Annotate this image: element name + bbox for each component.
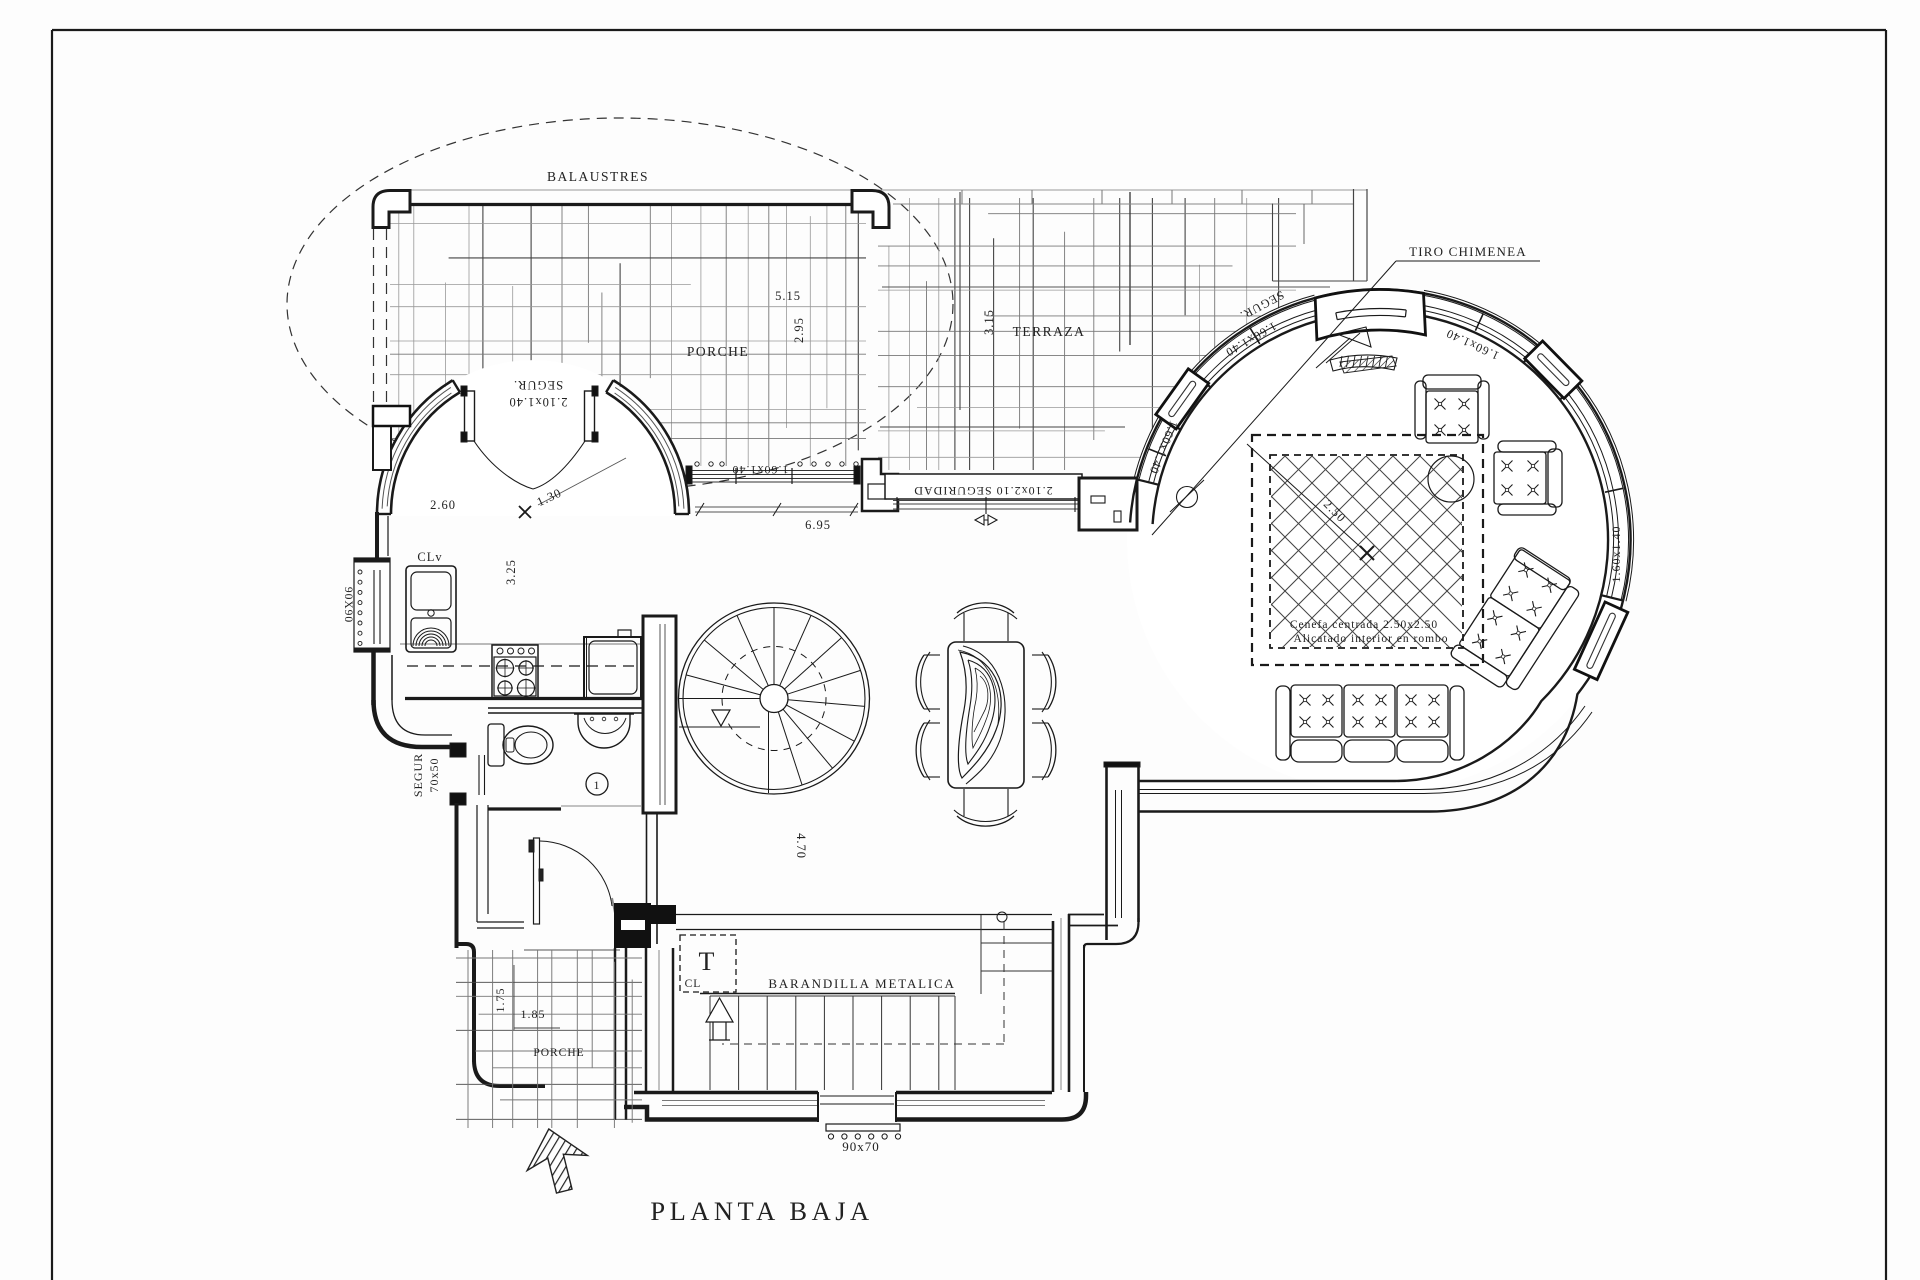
svg-text:PLANTA BAJA: PLANTA BAJA — [650, 1196, 873, 1226]
svg-text:PORCHE: PORCHE — [687, 344, 749, 359]
svg-text:BARANDILLA METALICA: BARANDILLA METALICA — [768, 976, 955, 991]
svg-text:Cenefa centrada 2.50x2.50: Cenefa centrada 2.50x2.50 — [1290, 619, 1438, 631]
svg-text:90x70: 90x70 — [842, 1139, 880, 1154]
svg-text:CL: CL — [685, 978, 702, 990]
svg-text:2.60: 2.60 — [430, 498, 456, 512]
svg-text:BALAUSTRES: BALAUSTRES — [547, 169, 649, 184]
svg-text:6.95: 6.95 — [805, 518, 831, 532]
svg-text:2.10x1.40: 2.10x1.40 — [509, 395, 568, 409]
svg-text:PORCHE: PORCHE — [533, 1047, 584, 1059]
svg-text:4.70: 4.70 — [794, 833, 808, 859]
svg-text:1.85: 1.85 — [521, 1007, 546, 1021]
svg-text:3.25: 3.25 — [504, 559, 518, 585]
svg-text:2.10x2.10 SEGURIDAD: 2.10x2.10 SEGURIDAD — [913, 484, 1052, 498]
svg-text:1.60x1.40: 1.60x1.40 — [1609, 526, 1623, 583]
svg-text:1.75: 1.75 — [493, 988, 507, 1013]
svg-text:TIRO CHIMENEA: TIRO CHIMENEA — [1409, 244, 1527, 259]
svg-text:2.95: 2.95 — [792, 317, 806, 343]
svg-text:3.15: 3.15 — [982, 309, 996, 335]
svg-text:T: T — [699, 947, 716, 976]
svg-text:CLv: CLv — [417, 550, 442, 564]
svg-text:SEGUR.: SEGUR. — [513, 378, 563, 392]
svg-text:1: 1 — [594, 778, 601, 792]
svg-text:70x50: 70x50 — [427, 758, 441, 793]
svg-text:90X90: 90X90 — [342, 587, 354, 623]
svg-text:TERRAZA: TERRAZA — [1013, 324, 1086, 339]
svg-text:5.15: 5.15 — [775, 289, 801, 303]
svg-text:Alicatado interior en rombo: Alicatado interior en rombo — [1293, 633, 1448, 645]
svg-text:1.60x1.40: 1.60x1.40 — [732, 463, 789, 477]
svg-text:SEGUR: SEGUR — [411, 753, 425, 797]
